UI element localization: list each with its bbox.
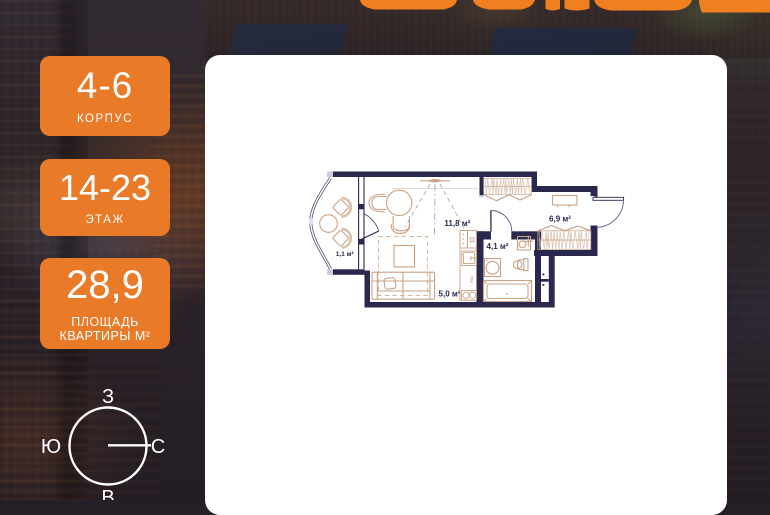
svg-text:ПМ: ПМ (469, 276, 474, 283)
svg-text:1,1 м²: 1,1 м² (336, 251, 355, 258)
svg-text:З: З (102, 386, 114, 408)
svg-text:С: С (151, 436, 165, 458)
svg-text:11,8 м²: 11,8 м² (444, 219, 470, 228)
svg-text:4,1 м²: 4,1 м² (487, 242, 509, 251)
svg-text:В: В (101, 487, 114, 500)
svg-text:5,0 м²: 5,0 м² (439, 290, 461, 299)
svg-text:Ю: Ю (41, 436, 61, 458)
svg-text:6,9 м²: 6,9 м² (549, 215, 571, 224)
